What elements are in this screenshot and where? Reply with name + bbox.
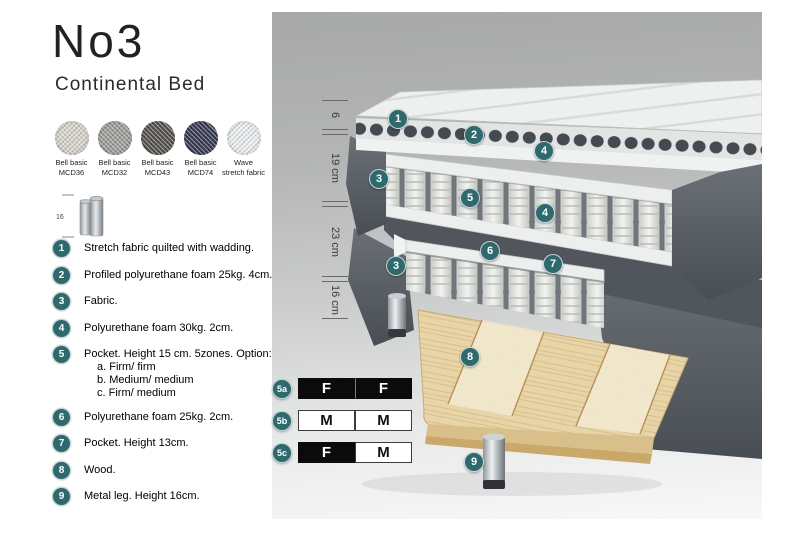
dimension-segment-23cm: 23 cm — [322, 206, 348, 277]
fabric-swatch: Wavestretch fabric — [222, 121, 265, 178]
diagram-badge-5: 5 — [460, 188, 480, 208]
fabric-swatch-label: Bell basicMCD43 — [136, 158, 179, 178]
fabric-swatch: Bell basicMCD32 — [93, 121, 136, 178]
leg-height-icon: 16 — [54, 188, 118, 242]
pocket-option-c: c. Firm/ medium — [97, 387, 272, 400]
legend-number-badge: 4 — [52, 319, 71, 338]
dimension-label: 19 cm — [329, 153, 341, 183]
fabric-swatch-row: Bell basicMCD36 Bell basicMCD32 Bell bas… — [50, 121, 266, 178]
metal-leg-left — [388, 293, 406, 337]
legend-item-6: 6 Polyurethane foam 25kg. 2cm. — [52, 408, 284, 427]
page-title: No3 — [52, 14, 145, 68]
legend-number-badge: 5 — [52, 345, 71, 364]
legend-number-badge: 7 — [52, 434, 71, 453]
pocket-option-a: a. Firm/ firm — [97, 361, 272, 374]
diagram-badge-3-lower: 3 — [386, 256, 406, 276]
legend-item-2: 2 Profiled polyurethane foam 25kg. 4cm. — [52, 266, 284, 285]
firmness-cell: F — [298, 442, 355, 463]
diagram-badge-4-upper: 4 — [534, 141, 554, 161]
firmness-row-5b: 5b M M — [272, 410, 412, 431]
dimension-label: 23 cm — [329, 227, 341, 257]
page-subtitle: Continental Bed — [55, 74, 205, 96]
dimension-segment-19cm: 19 cm — [322, 134, 348, 202]
legend-number-badge: 8 — [52, 461, 71, 480]
fabric-swatch-circle[interactable] — [184, 121, 218, 155]
legend-item-5: 5 Pocket. Height 15 cm. 5zones. Option: … — [52, 345, 284, 400]
legend-number-badge: 9 — [52, 487, 71, 506]
diagram-badge-4-lower: 4 — [535, 203, 555, 223]
diagram-badge-9: 9 — [464, 452, 484, 472]
fabric-swatch-label: Bell basicMCD32 — [93, 158, 136, 178]
diagram-badge-6: 6 — [480, 241, 500, 261]
dimension-label: 6 — [329, 112, 341, 118]
firmness-badge: 5a — [272, 379, 292, 399]
fabric-swatch-label: Wavestretch fabric — [222, 158, 265, 178]
dimension-segment-top: 6 — [322, 100, 348, 130]
fabric-swatch-circle[interactable] — [141, 121, 175, 155]
fabric-swatch: Bell basicMCD43 — [136, 121, 179, 178]
legend-number-badge: 3 — [52, 292, 71, 311]
dimension-segment-16cm: 16 cm — [322, 281, 348, 319]
fabric-swatch-label: Bell basicMCD36 — [50, 158, 93, 178]
legend-number-badge: 6 — [52, 408, 71, 427]
metal-leg-front — [483, 434, 505, 490]
fabric-swatch-circle[interactable] — [55, 121, 89, 155]
firmness-row-5a: 5a F F — [272, 378, 412, 399]
firmness-cell: M — [355, 442, 412, 463]
firmness-cell: M — [355, 410, 412, 431]
diagram-badge-1: 1 — [388, 109, 408, 129]
diagram-badge-2: 2 — [464, 125, 484, 145]
diagram-badge-3-upper: 3 — [369, 169, 389, 189]
pocket-option-b: b. Medium/ medium — [97, 374, 272, 387]
fabric-swatch-label: Bell basicMCD74 — [179, 158, 222, 178]
legend-number-badge: 2 — [52, 266, 71, 285]
product-sheet: No3 Continental Bed Bell basicMCD36 Bell… — [0, 0, 800, 533]
diagram-badge-7: 7 — [543, 254, 563, 274]
firmness-badge: 5b — [272, 411, 292, 431]
fabric-swatch-circle[interactable] — [227, 121, 261, 155]
diagram-badge-8: 8 — [460, 347, 480, 367]
dimension-label: 16 cm — [329, 285, 341, 315]
metal-leg-icon: 16 — [54, 188, 118, 242]
legend-item-7: 7 Pocket. Height 13cm. — [52, 434, 284, 453]
legend-item-1: 1 Stretch fabric quilted with wadding. — [52, 239, 284, 258]
firmness-cell: F — [355, 378, 412, 399]
legend-item-3: 3 Fabric. — [52, 292, 284, 311]
firmness-cell: M — [298, 410, 355, 431]
legend-item-4: 4 Polyurethane foam 30kg. 2cm. — [52, 319, 284, 338]
fabric-swatch: Bell basicMCD74 — [179, 121, 222, 178]
legend-item-8: 8 Wood. — [52, 461, 284, 480]
fabric-swatch-circle[interactable] — [98, 121, 132, 155]
leg-dimension-text: 16 — [56, 214, 64, 221]
fabric-swatch: Bell basicMCD36 — [50, 121, 93, 178]
firmness-row-5c: 5c F M — [272, 442, 412, 463]
legend-item-9: 9 Metal leg. Height 16cm. — [52, 487, 284, 506]
firmness-badge: 5c — [272, 443, 292, 463]
firmness-cell: F — [298, 378, 355, 399]
materials-legend: 1 Stretch fabric quilted with wadding. 2… — [52, 239, 284, 514]
legend-number-badge: 1 — [52, 239, 71, 258]
